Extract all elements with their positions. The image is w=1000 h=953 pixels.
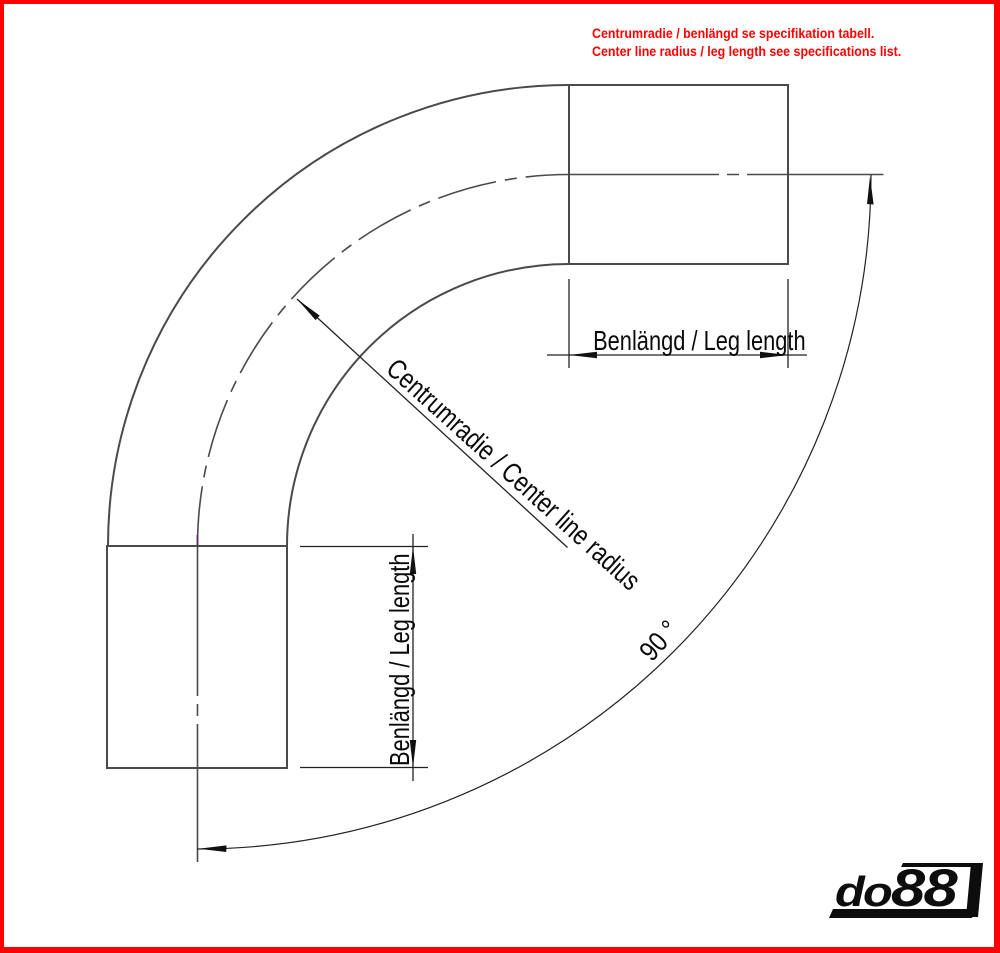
specification-notice-line-en: Center line radius / leg length see spec… <box>592 43 901 61</box>
logo-text: do88 <box>835 859 958 918</box>
technical-drawing-page: Centrumradie / benlängd se specifikation… <box>0 0 1000 953</box>
specification-notice: Centrumradie / benlängd se specifikation… <box>592 25 901 61</box>
logo-right-bar <box>966 863 983 917</box>
radius-arrow <box>297 299 320 320</box>
angle-arrow-bottom <box>199 845 227 852</box>
do88-logo: do88 <box>826 855 984 929</box>
radius-leader-line <box>297 299 568 548</box>
specification-notice-line-sv: Centrumradie / benlängd se specifikation… <box>592 25 901 43</box>
top-leg-length-label: Benlängd / Leg length <box>593 327 764 354</box>
angle-arrow-top <box>867 177 874 205</box>
left-leg-length-label: Benlängd / Leg length <box>386 553 413 766</box>
do88-logo-graphic: do88 <box>826 855 984 929</box>
